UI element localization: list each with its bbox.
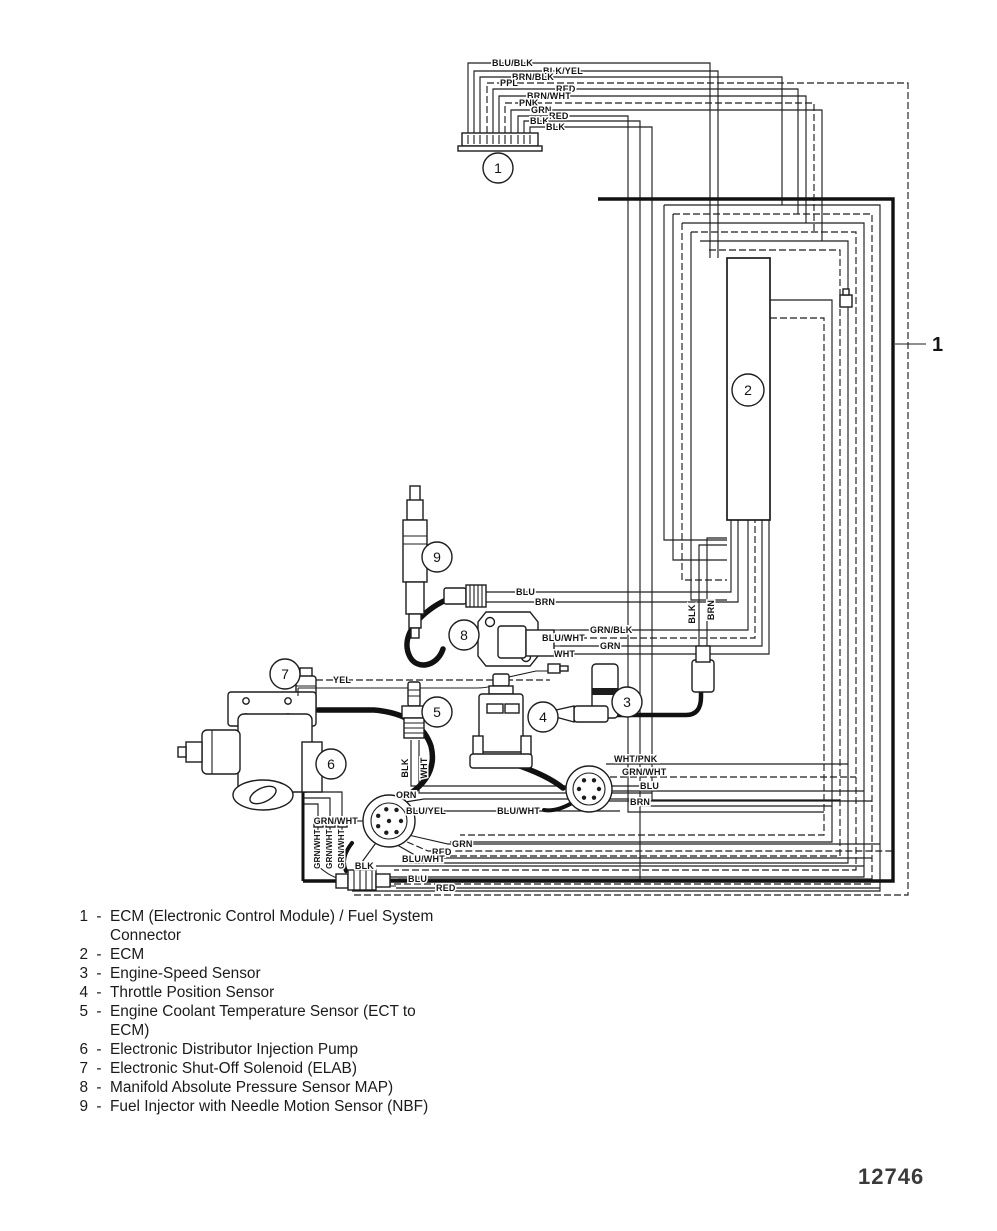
wire-label-blu-blk: BLU/BLK — [492, 58, 533, 68]
callout-2: 2 — [732, 374, 764, 406]
right-callout-label: 1 — [932, 334, 943, 356]
callout-1-number: 1 — [494, 160, 502, 176]
wire-label-pigtail-grn-wht-3: GRN/WHT — [337, 829, 346, 869]
wire-label-pigtail-grn-wht-1: GRN/WHT — [313, 829, 322, 869]
legend-label-line: ECM (Electronic Control Module) / Fuel S… — [110, 908, 470, 927]
legend-dash: - — [88, 984, 110, 1003]
legend-num: 8 — [70, 1079, 88, 1098]
legend: 1 - ECM (Electronic Control Module) / Fu… — [70, 908, 490, 1117]
component-fuel-system-connector — [458, 133, 542, 151]
callout-8: 8 — [449, 620, 479, 650]
wire-label-pump-blk: BLK — [355, 861, 374, 871]
wire-label-engine-wht-pnk: WHT/PNK — [614, 754, 658, 764]
wire-label-engine-blu: BLU — [640, 781, 659, 791]
wire-label-ppl: PPL — [500, 78, 518, 88]
legend-label: Electronic Distributor Injection Pump — [110, 1041, 470, 1060]
legend-item-9: 9 - Fuel Injector with Needle Motion Sen… — [70, 1098, 490, 1117]
legend-dash: - — [88, 946, 110, 965]
legend-dash: - — [88, 1098, 110, 1117]
legend-num: 2 — [70, 946, 88, 965]
callout-6: 6 — [316, 749, 346, 779]
legend-label: Fuel Injector with Needle Motion Sensor … — [110, 1098, 470, 1117]
callout-9-number: 9 — [433, 549, 441, 565]
wire-label-engine-blu-wht: BLU/WHT — [497, 806, 540, 816]
legend-num: 6 — [70, 1041, 88, 1060]
legend-label-line: Engine-Speed Sensor — [110, 965, 470, 984]
wire-label-pump-blu-wht: BLU/WHT — [402, 854, 445, 864]
callout-7: 7 — [270, 659, 300, 689]
legend-label: ECM — [110, 946, 470, 965]
wire-label-injector-brn: BRN — [535, 597, 555, 607]
wire-label-power-blu: BLU — [408, 874, 427, 884]
legend-num: 3 — [70, 965, 88, 984]
legend-item-2: 2 - ECM — [70, 946, 490, 965]
wire-label-speed-brn: BRN — [706, 600, 716, 620]
wire-label-blk-2: BLK — [546, 122, 565, 132]
wire-label-ect-blk: BLK — [400, 758, 410, 777]
wire-label-power-red: RED — [436, 883, 456, 893]
wire-label-engine-brn: BRN — [630, 797, 650, 807]
legend-dash: - — [88, 1041, 110, 1060]
legend-label-line: Electronic Distributor Injection Pump — [110, 1041, 470, 1060]
legend-dash: - — [88, 1060, 110, 1079]
power-connector — [336, 870, 398, 890]
wire-label-red-2: RED — [549, 111, 569, 121]
legend-label-line: Fuel Injector with Needle Motion Sensor … — [110, 1098, 470, 1117]
legend-label-line: ECM — [110, 946, 470, 965]
callout-5: 5 — [422, 697, 452, 727]
wire-label-ect-wht: WHT — [419, 757, 429, 778]
legend-num: 5 — [70, 1003, 88, 1040]
figure-number: 12746 — [858, 1164, 924, 1190]
callout-8-number: 8 — [460, 627, 468, 643]
wire-label-map-wht: WHT — [554, 649, 575, 659]
callout-6-number: 6 — [327, 756, 335, 772]
wire-label-speed-blk: BLK — [687, 604, 697, 623]
legend-num: 7 — [70, 1060, 88, 1079]
wire-label-map-grn: GRN — [600, 641, 621, 651]
legend-label-line: Manifold Absolute Pressure Sensor MAP) — [110, 1079, 470, 1098]
legend-dash: - — [88, 965, 110, 984]
wire-label-pump-grn: GRN — [452, 839, 473, 849]
legend-num: 1 — [70, 908, 88, 945]
legend-label: Engine-Speed Sensor — [110, 965, 470, 984]
wire-label-pump-grn-wht: GRN/WHT — [314, 816, 359, 826]
legend-item-8: 8 - Manifold Absolute Pressure Sensor MA… — [70, 1079, 490, 1098]
legend-label: Manifold Absolute Pressure Sensor MAP) — [110, 1079, 470, 1098]
legend-label: Engine Coolant Temperature Sensor (ECT t… — [110, 1003, 470, 1040]
legend-item-5: 5 - Engine Coolant Temperature Sensor (E… — [70, 1003, 490, 1040]
wiring-diagram-page: 1 2 3 4 5 6 7 8 9 1 BLU/BLK BLK/YEL BRN/… — [0, 0, 997, 1231]
legend-item-1: 1 - ECM (Electronic Control Module) / Fu… — [70, 908, 490, 945]
wire-label-map-grn-blk: GRN/BLK — [590, 625, 633, 635]
legend-label-line: Engine Coolant Temperature Sensor (ECT t… — [110, 1003, 470, 1022]
legend-label-line: ECM) — [110, 1022, 470, 1041]
legend-label-line: Connector — [110, 927, 470, 946]
legend-label: Electronic Shut-Off Solenoid (ELAB) — [110, 1060, 470, 1079]
engine-connector-stub — [544, 803, 572, 810]
callout-5-number: 5 — [433, 704, 441, 720]
legend-item-7: 7 - Electronic Shut-Off Solenoid (ELAB) — [70, 1060, 490, 1079]
wire-label-elab-yel: YEL — [333, 675, 351, 685]
callout-4-number: 4 — [539, 709, 547, 725]
wire-label-brn-blk: BRN/BLK — [512, 72, 554, 82]
legend-label-line: Electronic Shut-Off Solenoid (ELAB) — [110, 1060, 470, 1079]
callout-2-number: 2 — [744, 382, 752, 398]
pump-harness-connector — [363, 795, 415, 847]
callout-9: 9 — [422, 542, 452, 572]
callout-3-number: 3 — [623, 694, 631, 710]
legend-dash: - — [88, 1003, 110, 1040]
legend-item-6: 6 - Electronic Distributor Injection Pum… — [70, 1041, 490, 1060]
wire-label-injector-blu: BLU — [516, 587, 535, 597]
legend-dash: - — [88, 908, 110, 945]
legend-label-line: Throttle Position Sensor — [110, 984, 470, 1003]
legend-dash: - — [88, 1079, 110, 1098]
wire-label-pigtail-grn-wht-2: GRN/WHT — [325, 829, 334, 869]
legend-num: 9 — [70, 1098, 88, 1117]
callout-7-number: 7 — [281, 666, 289, 682]
legend-label: ECM (Electronic Control Module) / Fuel S… — [110, 908, 470, 945]
wire-label-pump-blu-yel: BLU/YEL — [406, 806, 446, 816]
callout-1: 1 — [483, 153, 513, 183]
legend-item-3: 3 - Engine-Speed Sensor — [70, 965, 490, 984]
callout-3: 3 — [612, 687, 642, 717]
legend-item-4: 4 - Throttle Position Sensor — [70, 984, 490, 1003]
wire-label-map-blu-wht: BLU/WHT — [542, 633, 585, 643]
legend-label: Throttle Position Sensor — [110, 984, 470, 1003]
wire-label-pump-orn: ORN — [396, 790, 417, 800]
legend-num: 4 — [70, 984, 88, 1003]
wire-label-engine-grn-wht: GRN/WHT — [622, 767, 667, 777]
engine-harness-connector — [566, 766, 612, 812]
callout-4: 4 — [528, 702, 558, 732]
